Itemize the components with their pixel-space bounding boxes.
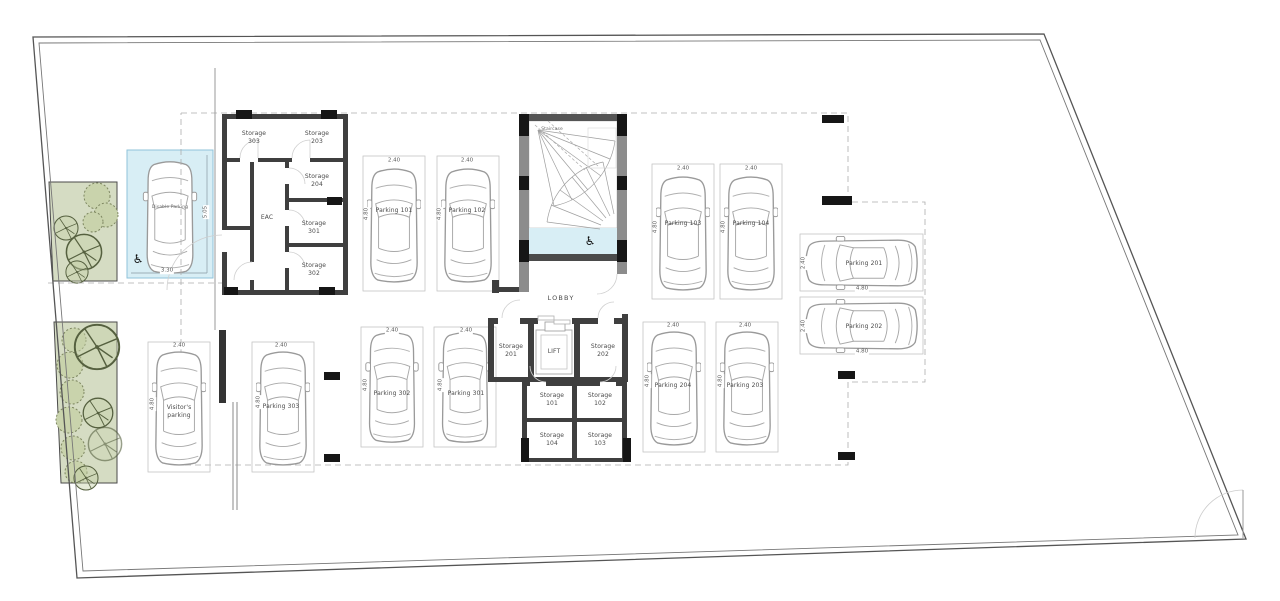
- landscaping-area-top: [0, 4, 118, 283]
- parking-label-disabled: Disable Parking: [152, 205, 188, 211]
- car-icon: [143, 162, 196, 273]
- car-icon: [441, 169, 495, 282]
- dim-length: 4.80: [645, 374, 651, 388]
- room-label-storage-203: Storage 203: [305, 130, 329, 146]
- car-icon: [367, 169, 421, 282]
- room-label-storage-302: Storage 302: [302, 262, 326, 278]
- column: [623, 438, 631, 462]
- column: [319, 287, 335, 295]
- car-icon: [724, 177, 778, 290]
- dim-width: 2.40: [459, 328, 473, 334]
- lift-shaft: [536, 316, 572, 374]
- parking-label-102: Parking 102: [449, 207, 486, 215]
- parking-label-302: Parking 302: [374, 390, 411, 398]
- parking-stall-104: [720, 164, 782, 299]
- room-label-lobby: LOBBY: [547, 294, 574, 302]
- dim-length: 4.80: [364, 207, 370, 221]
- floor-plan-canvas: Storage 303 Storage 203 Storage 204 Stor…: [0, 0, 1280, 601]
- car-icon: [366, 333, 418, 442]
- dim-width: 2.40: [801, 319, 807, 333]
- dim-disabled-length: 5.05: [203, 205, 209, 219]
- room-label-storage-103: Storage 103: [588, 432, 612, 448]
- column: [324, 372, 340, 380]
- dim-length: 4.80: [653, 220, 659, 234]
- staircase-drawing: [492, 114, 627, 293]
- column: [838, 452, 855, 460]
- room-label-eac: EAC: [261, 214, 273, 222]
- room-label-staircase: Staircase: [541, 127, 563, 133]
- dim-length: 4.80: [855, 286, 869, 292]
- column: [224, 287, 238, 295]
- column: [521, 438, 529, 462]
- car-icon: [656, 177, 710, 290]
- room-label-storage-202: Storage 202: [591, 343, 615, 359]
- parking-label-101: Parking 101: [376, 207, 413, 215]
- parking-label-303: Parking 303: [263, 403, 300, 411]
- dim-width: 2.40: [172, 343, 186, 349]
- room-label-storage-102: Storage 102: [588, 392, 612, 408]
- room-label-storage-101: Storage 101: [540, 392, 564, 408]
- dim-length: 4.80: [438, 378, 444, 392]
- column: [838, 371, 855, 379]
- tree-icon: [75, 325, 119, 369]
- wheelchair-icon: ♿: [133, 253, 144, 265]
- parking-stall-103: [652, 164, 714, 299]
- tree-icon: [74, 466, 98, 490]
- dim-width: 2.40: [744, 166, 758, 172]
- parking-label-202: Parking 202: [846, 323, 883, 331]
- room-label-storage-301: Storage 301: [302, 220, 326, 236]
- column: [236, 110, 252, 119]
- parking-label-204: Parking 204: [655, 382, 692, 390]
- tree-icon: [83, 398, 113, 428]
- column: [822, 196, 852, 205]
- column: [327, 197, 342, 205]
- parking-stall-102: [437, 156, 499, 291]
- column: [822, 115, 844, 123]
- dim-length: 4.80: [437, 207, 443, 221]
- parking-stall-302: [361, 327, 423, 447]
- parking-stall-101: [363, 156, 425, 291]
- parking-label-103: Parking 103: [665, 220, 702, 228]
- dim-length: 4.80: [256, 395, 262, 409]
- parking-label-104: Parking 104: [733, 220, 770, 228]
- room-label-storage-201: Storage 201: [499, 343, 523, 359]
- tree-icon: [66, 261, 88, 283]
- room-label-storage-204: Storage 204: [305, 173, 329, 189]
- dim-width: 2.40: [387, 158, 401, 164]
- dim-length: 4.80: [855, 349, 869, 355]
- parking-label-201: Parking 201: [846, 260, 883, 268]
- dim-disabled-width: 3.30: [160, 268, 174, 274]
- floor-plan-drawing: [0, 0, 1280, 601]
- wheelchair-icon: ♿: [585, 235, 596, 247]
- parking-label-301: Parking 301: [448, 390, 485, 398]
- dim-width: 2.40: [385, 328, 399, 334]
- dim-width: 2.40: [666, 323, 680, 329]
- dim-width: 2.40: [274, 343, 288, 349]
- room-label-storage-104: Storage 104: [540, 432, 564, 448]
- dim-length: 4.80: [150, 397, 156, 411]
- car-icon: [439, 333, 491, 442]
- column: [324, 454, 340, 462]
- dim-length: 4.80: [718, 374, 724, 388]
- parking-label-203: Parking 203: [727, 382, 764, 390]
- dim-width: 2.40: [738, 323, 752, 329]
- dim-width: 2.40: [801, 256, 807, 270]
- column: [321, 110, 337, 119]
- room-label-lift: LIFT: [548, 348, 561, 356]
- room-label-storage-303: Storage 303: [242, 130, 266, 146]
- dim-length: 4.80: [363, 378, 369, 392]
- dim-length: 4.80: [721, 220, 727, 234]
- parking-label-visitor: Visitor's parking: [167, 404, 192, 420]
- dim-width: 2.40: [676, 166, 690, 172]
- dim-width: 2.40: [460, 158, 474, 164]
- tree-icon: [88, 427, 121, 460]
